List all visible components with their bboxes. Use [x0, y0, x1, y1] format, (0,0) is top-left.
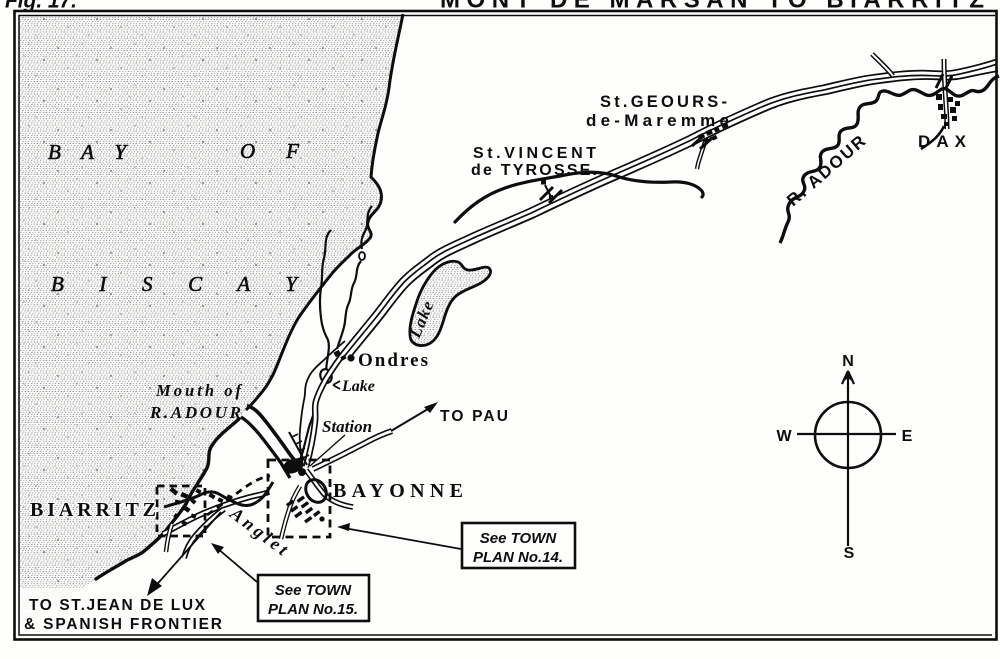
svg-text:DAX: DAX	[918, 132, 967, 151]
svg-text:St.VINCENT: St.VINCENT	[473, 145, 596, 162]
svg-text:BAYONNE: BAYONNE	[333, 480, 463, 502]
svg-text:Ondres: Ondres	[358, 350, 428, 371]
svg-text:See TOWN: See TOWN	[480, 530, 558, 547]
svg-text:See TOWN: See TOWN	[275, 582, 353, 599]
svg-text:de-Maremme: de-Maremme	[586, 111, 729, 130]
svg-text:Mouth of: Mouth of	[155, 381, 243, 400]
svg-text:TO ST.JEAN DE LUX: TO ST.JEAN DE LUX	[29, 597, 206, 614]
svg-text:B A Y: B A Y	[48, 140, 128, 164]
svg-text:O F: O F	[240, 139, 299, 163]
svg-text:Station: Station	[322, 417, 372, 436]
svg-text:PLAN No.14.: PLAN No.14.	[473, 549, 563, 566]
svg-text:N: N	[842, 353, 854, 370]
svg-text:Lake: Lake	[341, 378, 375, 395]
svg-text:PLAN No.15.: PLAN No.15.	[268, 601, 358, 618]
svg-text:St.GEOURS-: St.GEOURS-	[600, 93, 727, 111]
svg-text:S: S	[844, 545, 855, 562]
svg-text:E: E	[902, 428, 913, 445]
svg-text:W: W	[776, 428, 792, 445]
